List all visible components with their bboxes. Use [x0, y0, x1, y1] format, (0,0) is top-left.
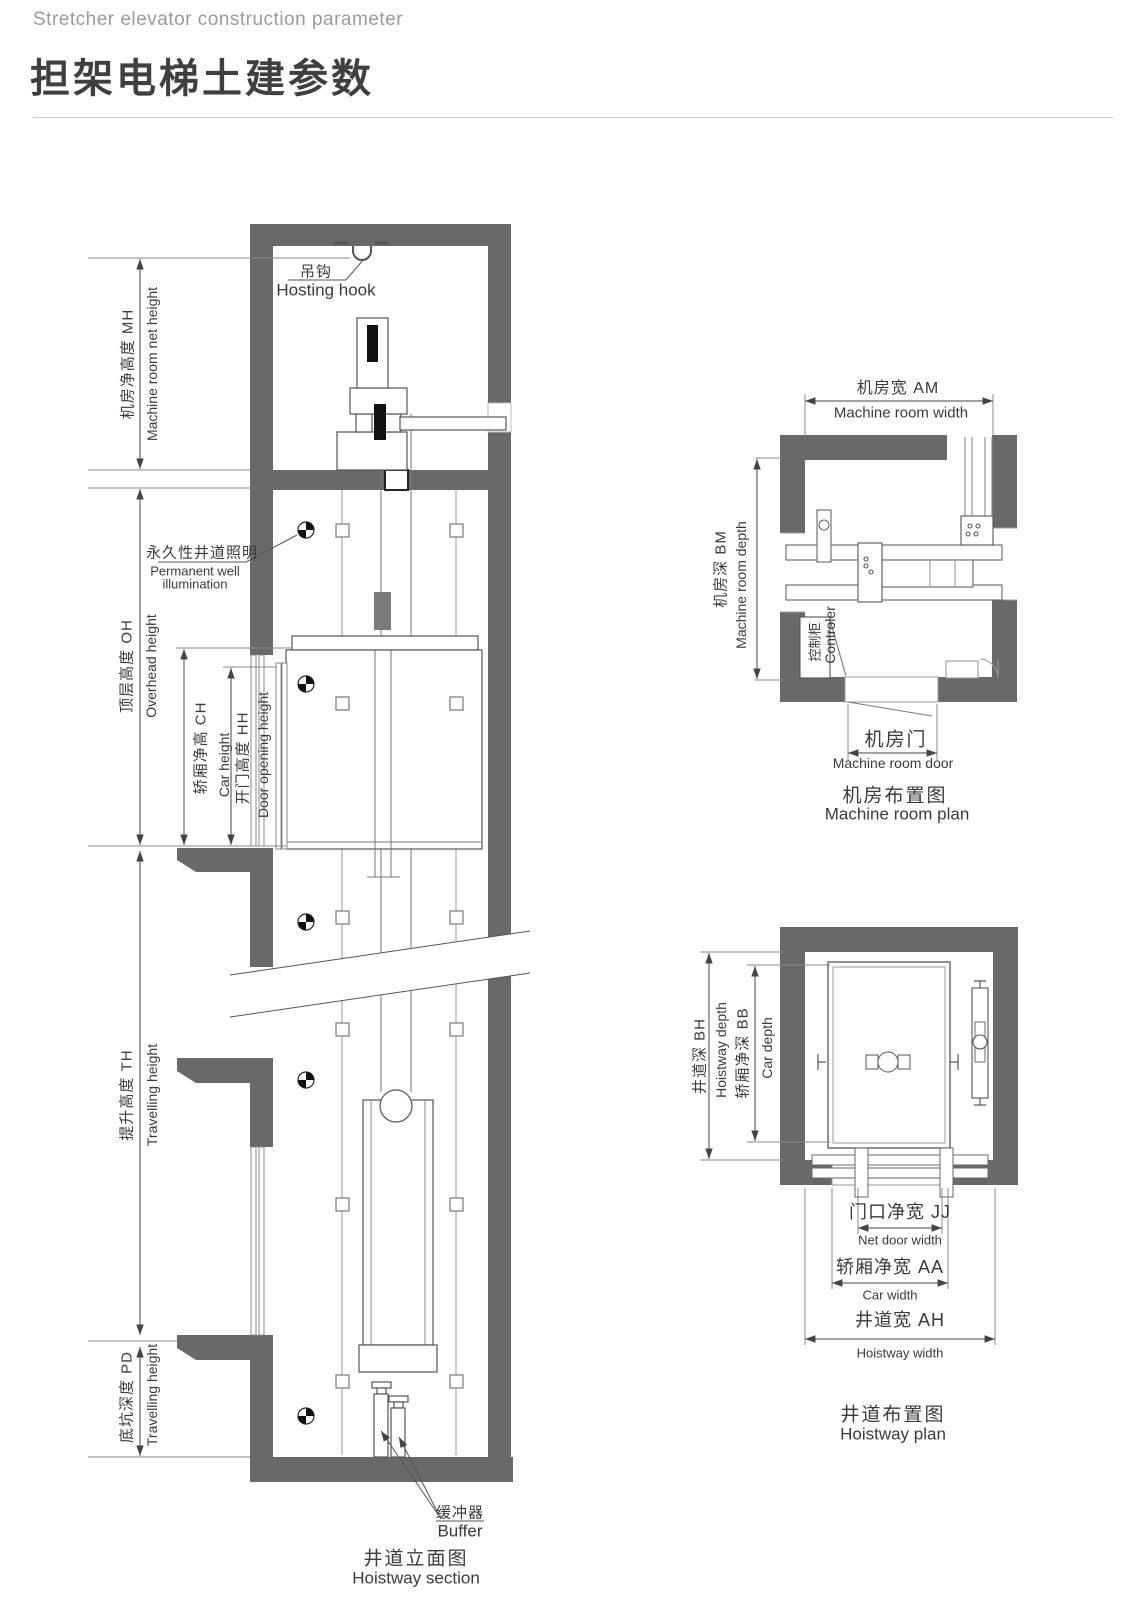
door-swing-line: [848, 702, 932, 716]
dim-jj-label-cn: 门口净宽 JJ: [849, 1203, 951, 1221]
machine-room-caption-en: Machine room plan: [825, 806, 970, 823]
governor-plan: [817, 510, 831, 562]
controller-label-cn: 控制柜: [809, 622, 822, 661]
illumination-label-cn: 永久性井道照明: [146, 546, 258, 561]
buffer-label-en: Buffer: [437, 1523, 482, 1540]
machine-room-door-label-en: Machine room door: [833, 756, 954, 770]
section-caption-cn: 井道立面图: [363, 1550, 468, 1569]
counterweight-section: [359, 1090, 437, 1372]
dim-am-label-cn: 机房宽 AM: [857, 381, 939, 397]
hoistway-caption-en: Hoistway plan: [840, 1426, 946, 1443]
dim-pd-label-en: Travelling height: [145, 1344, 159, 1446]
dim-oh-label-cn: 顶层高度 OH: [120, 619, 135, 713]
buffer-right: [389, 1396, 408, 1402]
section-caption-en: Hoistway section: [352, 1570, 480, 1587]
rope-hitch-plan: [961, 516, 993, 545]
machine-room-door-label-cn: 机房门: [864, 731, 927, 750]
hook-label-cn: 吊钩: [300, 265, 332, 280]
dim-aa-label-cn: 轿厢净宽 AA: [836, 1258, 944, 1276]
car-door: [276, 663, 281, 849]
dim-pd-label-cn: 底坑深度 PD: [120, 1351, 135, 1443]
dim-bm-label-cn: 机房深 BM: [714, 530, 729, 608]
machine-room-plan-drawing: [755, 394, 1017, 761]
hoistway-plan-drawing: [700, 927, 1018, 1345]
dim-bm-label-en: Machine room depth: [734, 521, 748, 649]
page: Stretcher elevator construction paramete…: [0, 0, 1146, 1600]
car-door: [282, 663, 287, 849]
dim-hh-label-cn: 开门高度 HH: [236, 712, 251, 805]
dim-ch-label-cn: 轿厢净高 CH: [194, 702, 209, 795]
door-sills: [812, 1148, 988, 1197]
rope-hole: [385, 470, 408, 490]
machine-room-caption-cn: 机房布置图: [842, 787, 947, 806]
dim-hh-label-en: Door opening height: [256, 692, 270, 818]
hoistway-caption-cn: 井道布置图: [840, 1406, 945, 1425]
dim-bh-label-en: Hoistway depth: [714, 1002, 728, 1098]
counterweight-plan: [972, 988, 988, 1098]
buffer-left: [372, 1382, 391, 1388]
traction-machine-plan: [858, 543, 882, 602]
counterweight-pulley: [380, 1090, 412, 1122]
dim-ch-label-en: Car height: [217, 733, 231, 798]
construction-drawing: [0, 0, 1146, 1600]
car-lamp-icon: [878, 1052, 898, 1072]
illumination-label-en2: illumination: [162, 578, 227, 591]
dim-th-label-en: Travelling height: [145, 1044, 159, 1146]
dim-ah-label-cn: 井道宽 AH: [855, 1311, 945, 1329]
buffers: [372, 1382, 408, 1457]
dim-jj-label-en: Net door width: [858, 1234, 942, 1247]
elevator-car-section: [276, 592, 482, 877]
dim-bb-label-cn: 轿厢净深 BB: [736, 1007, 751, 1098]
dim-aa-label-en: Car width: [863, 1289, 918, 1302]
dim-am-label-en: Machine room width: [834, 406, 968, 421]
car-plan: [828, 962, 950, 1148]
dim-oh-label-en: Overhead height: [144, 614, 158, 718]
dim-ah-label-en: Hoistway width: [857, 1347, 944, 1360]
door-panel: [855, 1148, 868, 1197]
hook-label-en: Hosting hook: [276, 282, 375, 299]
controller-label-en: Controler: [823, 606, 837, 664]
buffer-label-cn: 缓冲器: [436, 1506, 484, 1521]
machine-beam: [400, 417, 506, 430]
traction-machine: [337, 318, 506, 470]
machine-room-door-opening: [845, 677, 938, 702]
section-break: [230, 931, 530, 1017]
section-walls: [177, 224, 513, 1482]
dim-mh-label-cn: 机房净高度 MH: [121, 309, 136, 420]
dim-th-label-cn: 提升高度 TH: [120, 1049, 135, 1140]
dim-bb-label-en: Car depth: [760, 1017, 774, 1078]
dim-mh-label-en: Machine room net height: [145, 287, 159, 441]
rope-hitch: [374, 592, 391, 630]
dim-bh-label-cn: 井道深 BH: [693, 1018, 708, 1094]
